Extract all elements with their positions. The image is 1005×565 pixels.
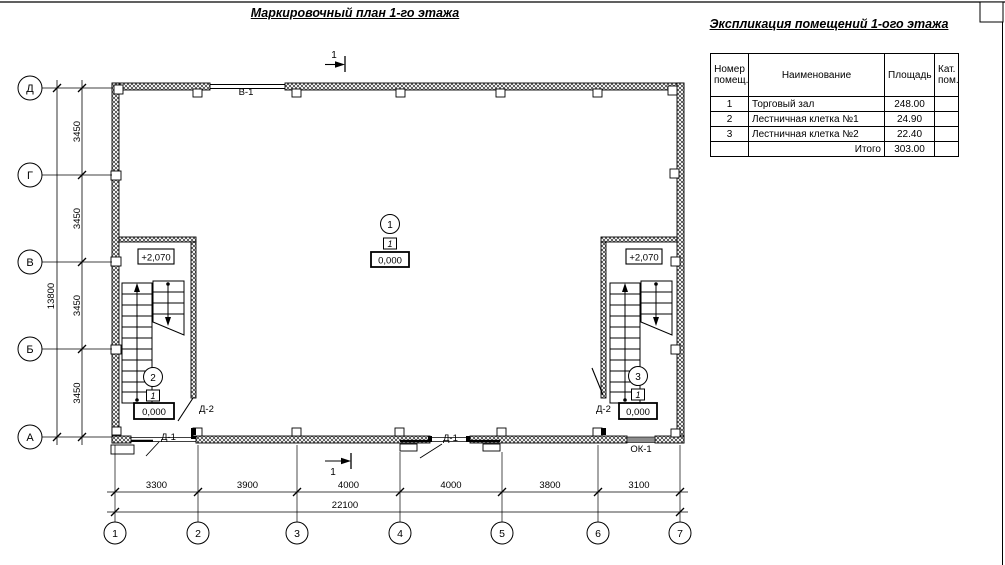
- dim-text: 3450: [72, 208, 83, 229]
- dim-text: 3300: [146, 480, 167, 491]
- door-d1-label: Д-1: [161, 432, 176, 443]
- interior-doors: [178, 368, 606, 435]
- dim-text: 3450: [72, 295, 83, 316]
- dim-text: 4000: [338, 480, 359, 491]
- room-number: 2: [150, 373, 156, 384]
- dim-text: 3450: [72, 121, 83, 142]
- axis-label: 7: [677, 528, 683, 540]
- door-d2-label: Д-2: [596, 404, 611, 415]
- axis-label: Г: [27, 170, 33, 182]
- room-number: 1: [387, 220, 393, 231]
- dim-text: 3900: [237, 480, 258, 491]
- dim-text: 4000: [440, 480, 461, 491]
- level-zero-text: 0,000: [626, 407, 650, 418]
- axis-label: 6: [595, 528, 601, 540]
- axis-label: А: [26, 432, 34, 444]
- room-marker-hall: 1 1 0,000: [371, 215, 409, 268]
- floor-plan-canvas: +2,070 +2,070 1 1 0,000 2 1 0,000 3 1: [0, 0, 1005, 565]
- dim-total-text: 13800: [46, 283, 57, 309]
- section-number: 1: [330, 467, 336, 478]
- level-mark-upper-left: +2,070: [138, 249, 174, 264]
- axis-label: 4: [397, 528, 403, 540]
- axes-bottom: 1 2 3 4 5 6 7: [104, 522, 691, 544]
- level-upper-text: +2,070: [141, 253, 170, 264]
- element-labels: В-1 ОК-1 Д-1 Д-1 Д-2 Д-2: [146, 87, 652, 458]
- axes-left: Д Г В Б А: [18, 76, 112, 449]
- section-mark-bottom: 1: [325, 453, 351, 478]
- window-v1-label: В-1: [239, 87, 254, 98]
- axis-label: 5: [499, 528, 505, 540]
- dim-total-text: 22100: [332, 500, 358, 511]
- floor-type: 1: [635, 390, 640, 400]
- door-d2-label: Д-2: [199, 404, 214, 415]
- axis-label: В: [26, 257, 33, 269]
- room-number: 3: [635, 372, 641, 383]
- level-mark-upper-right: +2,070: [626, 249, 662, 264]
- level-upper-text: +2,070: [629, 253, 658, 264]
- level-zero-text: 0,000: [378, 256, 402, 267]
- dim-text: 3800: [539, 480, 560, 491]
- dim-text: 3100: [628, 480, 649, 491]
- floor-type: 1: [387, 239, 392, 249]
- door-d1-label: Д-1: [443, 433, 458, 444]
- window-ok1-label: ОК-1: [630, 444, 651, 455]
- window-ok1: [627, 437, 655, 443]
- level-zero-text: 0,000: [142, 407, 166, 418]
- axis-label: 2: [195, 528, 201, 540]
- section-number: 1: [331, 50, 337, 61]
- floor-type: 1: [150, 391, 155, 401]
- dim-text: 3450: [72, 382, 83, 403]
- axis-label: Д: [26, 83, 34, 95]
- axis-label: 3: [294, 528, 300, 540]
- dimensions-left: 3450 3450 3450 3450 13800: [46, 80, 86, 445]
- drawing-sheet: Маркировочный план 1-го этажа Экспликаци…: [0, 0, 1005, 565]
- axis-label: Б: [26, 344, 33, 356]
- section-mark-top: 1: [325, 50, 345, 72]
- axis-label: 1: [112, 528, 118, 540]
- dimensions-bottom: 3300 3900 4000 4000 3800 3100 22100: [107, 445, 688, 522]
